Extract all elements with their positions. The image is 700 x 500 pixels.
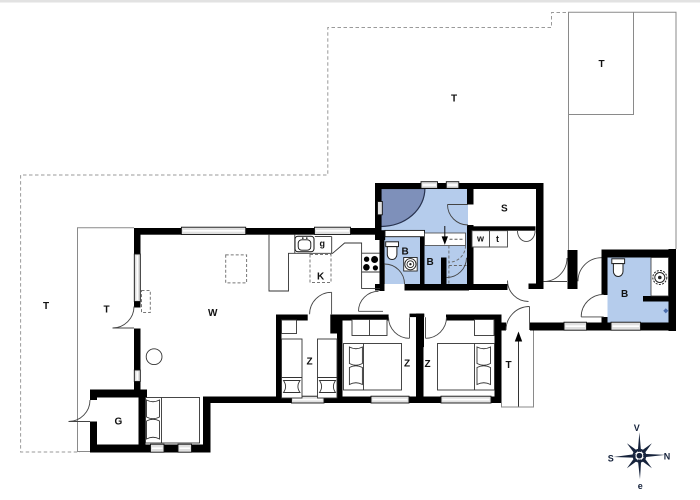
svg-text:T: T bbox=[104, 305, 110, 316]
svg-text:V: V bbox=[634, 423, 640, 433]
svg-text:B: B bbox=[621, 289, 628, 300]
svg-text:w: w bbox=[476, 234, 485, 244]
svg-text:T: T bbox=[43, 301, 49, 312]
svg-text:G: G bbox=[115, 417, 123, 428]
svg-text:Z: Z bbox=[425, 359, 431, 370]
svg-text:S: S bbox=[501, 204, 508, 215]
svg-text:Z: Z bbox=[404, 359, 410, 370]
svg-text:W: W bbox=[208, 308, 218, 319]
svg-text:B: B bbox=[402, 247, 409, 258]
svg-text:T: T bbox=[506, 360, 512, 371]
svg-text:B: B bbox=[427, 257, 434, 268]
svg-text:T: T bbox=[451, 94, 457, 105]
svg-text:T: T bbox=[599, 59, 605, 70]
svg-text:K: K bbox=[317, 272, 325, 283]
svg-text:t: t bbox=[496, 234, 499, 244]
svg-text:g: g bbox=[320, 239, 326, 249]
svg-text:Z: Z bbox=[307, 357, 313, 368]
svg-text:e: e bbox=[638, 481, 643, 491]
svg-text:N: N bbox=[664, 452, 671, 462]
svg-text:S: S bbox=[608, 454, 614, 464]
